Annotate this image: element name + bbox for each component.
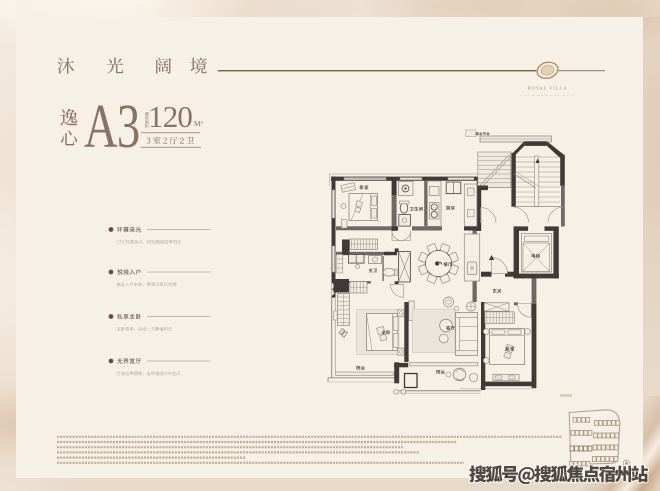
svg-text:C H I N A R E S O U R C E: C H I N A R E S O U R C E [521,94,575,97]
svg-text:M²: M² [194,119,204,128]
svg-text:ROYAL VILLA: ROYAL VILLA [528,86,568,91]
svg-text:A3: A3 [84,91,139,160]
svg-text:120: 120 [148,99,192,134]
